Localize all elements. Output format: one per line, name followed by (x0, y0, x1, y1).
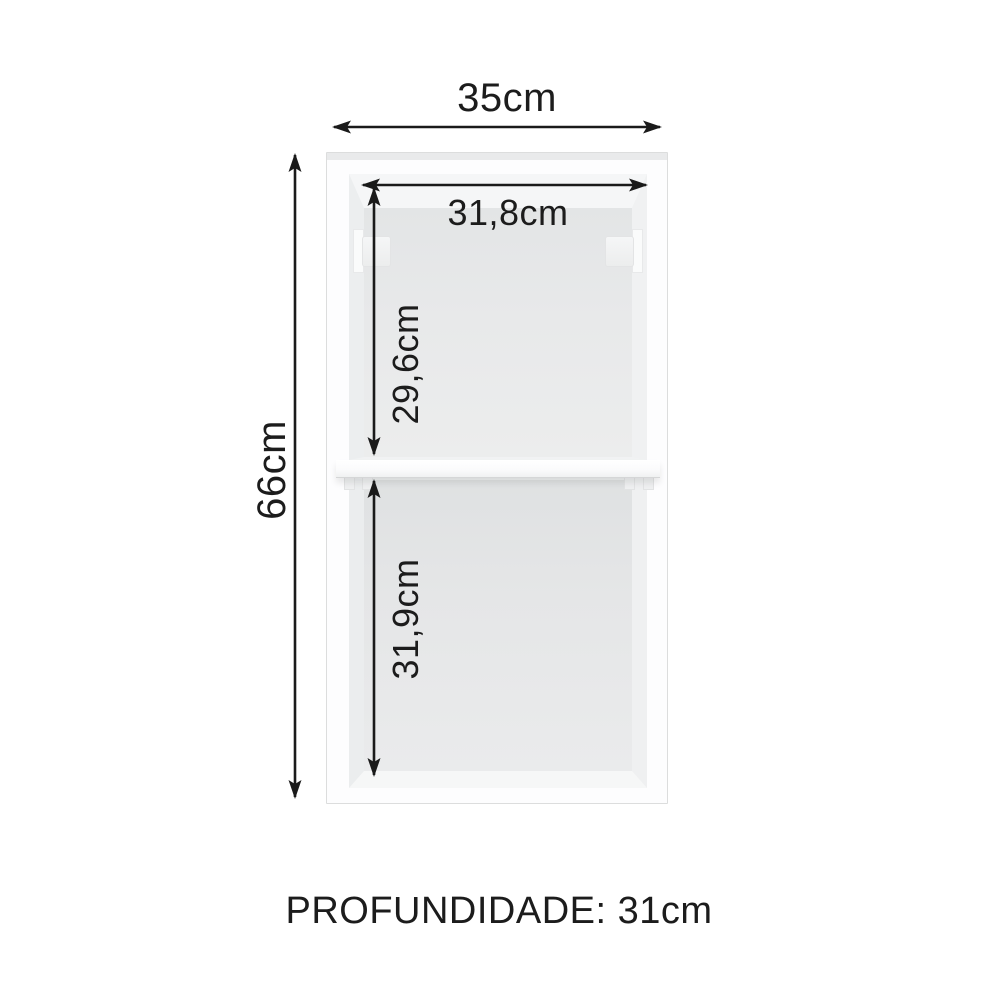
inner-width-dimension-label: 31,8cm (447, 195, 568, 231)
outer-width-arrow (332, 121, 662, 134)
inner-width-arrow (361, 179, 648, 192)
depth-dimension-label: PROFUNDIDADE: 31cm (285, 892, 712, 930)
upper-compartment-height-arrow (368, 187, 381, 456)
width-dimension-label: 35cm (457, 78, 557, 118)
lower-compartment-height-arrow (368, 479, 381, 777)
height-dimension-label: 66cm (252, 420, 292, 520)
dimension-diagram-canvas: 35cm 66cm 31,8cm 29,6cm 31,9cm PROFUNDID… (0, 0, 1000, 1000)
lower-compartment-height-label: 31,9cm (388, 558, 424, 679)
upper-compartment-height-label: 29,6cm (388, 303, 424, 424)
dimension-arrows (0, 0, 1000, 1000)
